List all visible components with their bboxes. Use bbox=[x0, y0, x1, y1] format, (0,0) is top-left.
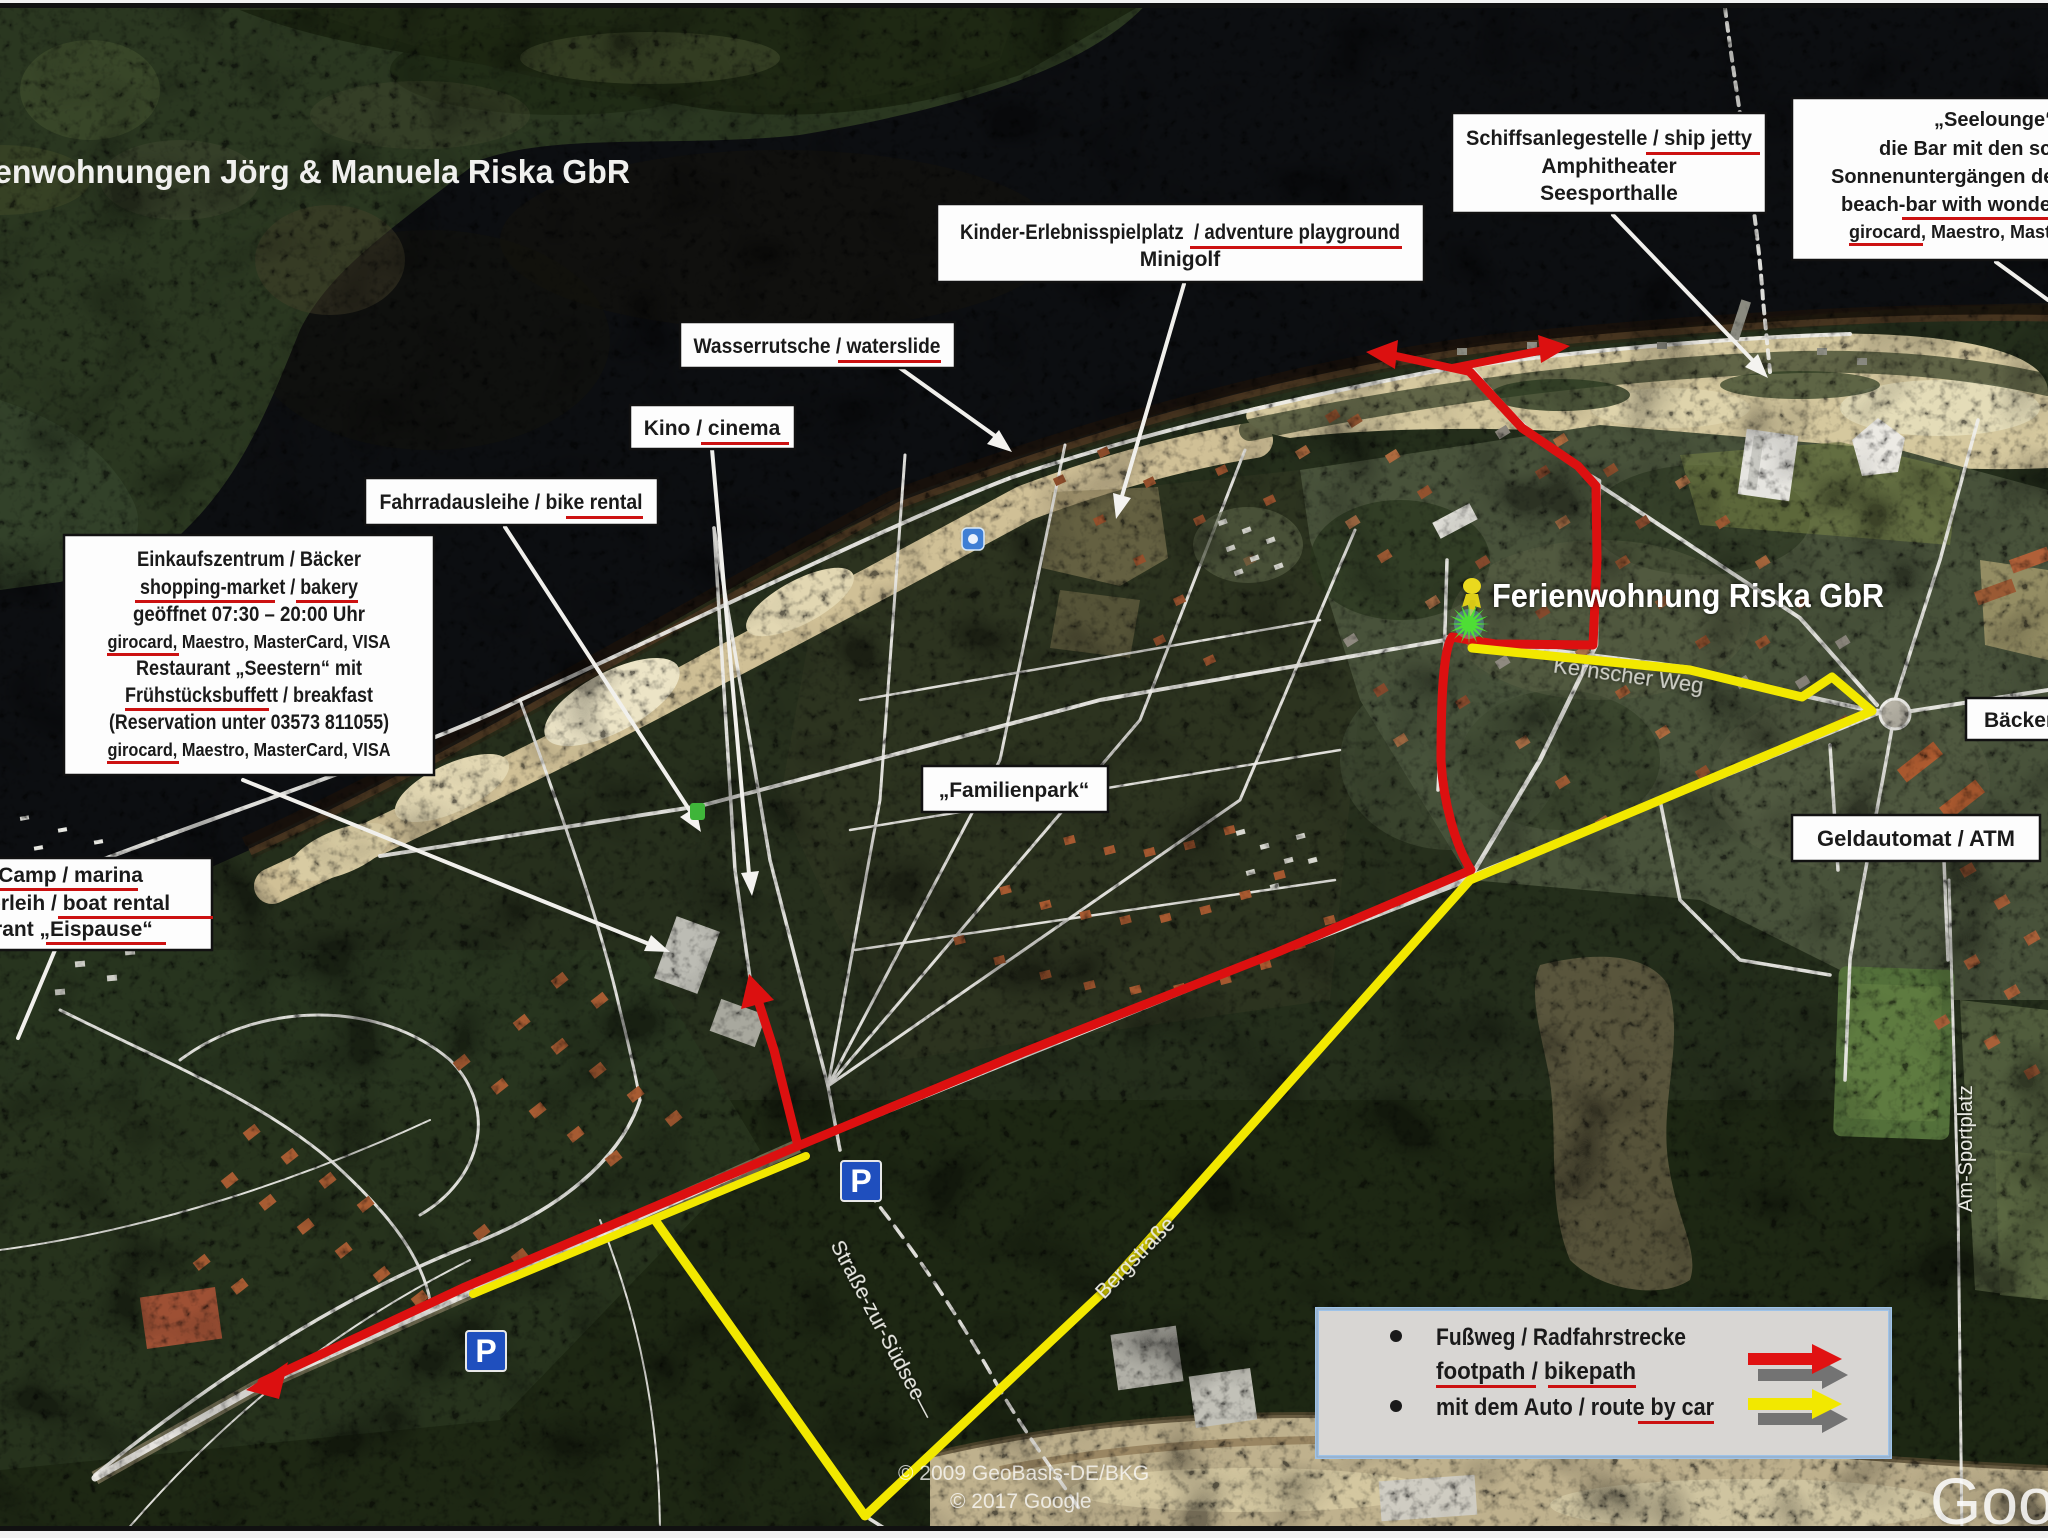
svg-text:Ferienwohnung Riska GbR: Ferienwohnung Riska GbR bbox=[1492, 577, 1884, 614]
svg-text:footpath / bikepath: footpath / bikepath bbox=[1436, 1358, 1636, 1385]
svg-text:Kinder-Erlebnisspielplatz / a: Kinder-Erlebnisspielplatz / adventure pl… bbox=[960, 221, 1400, 244]
svg-text:Schiffsanlegestelle / ship jet: Schiffsanlegestelle / ship jetty bbox=[1466, 127, 1752, 150]
svg-text:mit dem Auto / route by car: mit dem Auto / route by car bbox=[1436, 1394, 1714, 1421]
svg-text:„Familienpark“: „Familienpark“ bbox=[939, 779, 1090, 802]
svg-text:Minigolf: Minigolf bbox=[1140, 248, 1221, 271]
svg-text:Restaurant „Seestern“ mit: Restaurant „Seestern“ mit bbox=[136, 657, 362, 680]
svg-text:Wasserrutsche / waterslide: Wasserrutsche / waterslide bbox=[694, 335, 941, 358]
svg-text:P: P bbox=[475, 1333, 496, 1369]
svg-text:Fahrradausleihe / bike rental: Fahrradausleihe / bike rental bbox=[380, 491, 643, 514]
svg-text:Frühstücksbuffett / breakfast: Frühstücksbuffett / breakfast bbox=[125, 684, 373, 707]
svg-text:Sonnenuntergängen des S: Sonnenuntergängen des S bbox=[1831, 166, 2048, 188]
svg-text:Amphitheater: Amphitheater bbox=[1541, 155, 1676, 178]
svg-text:© 2009 GeoBasis-DE/BKG: © 2009 GeoBasis-DE/BKG bbox=[898, 1462, 1149, 1485]
svg-text:„Seelounge“ –: „Seelounge“ – bbox=[1934, 109, 2048, 131]
svg-text:die Bar mit den schön: die Bar mit den schön bbox=[1879, 138, 2048, 160]
svg-text:shopping-market / bakery: shopping-market / bakery bbox=[140, 576, 358, 599]
svg-text:© 2017 Google: © 2017 Google bbox=[950, 1490, 1092, 1513]
svg-text:Kino / cinema: Kino / cinema bbox=[644, 417, 781, 440]
svg-text:P: P bbox=[850, 1163, 871, 1199]
svg-text:Geldautomat / ATM: Geldautomat / ATM bbox=[1817, 826, 2015, 851]
svg-text:enwohnungen Jörg & Manuela Ris: enwohnungen Jörg & Manuela Riska GbR bbox=[0, 153, 630, 190]
svg-text:beach-bar with wonderfu: beach-bar with wonderfu bbox=[1841, 194, 2048, 216]
svg-text:SeenCamp / marina: SeenCamp / marina bbox=[0, 864, 143, 887]
svg-text:Am-Sportplatz: Am-Sportplatz bbox=[1955, 1085, 1977, 1212]
svg-text:Einkaufszentrum / Bäcker: Einkaufszentrum / Bäcker bbox=[137, 548, 361, 571]
svg-text:Restaurant „Eispause“: Restaurant „Eispause“ bbox=[0, 918, 153, 941]
svg-text:geöffnet 07:30 – 20:00 Uhr: geöffnet 07:30 – 20:00 Uhr bbox=[133, 603, 365, 626]
svg-text:Seesporthalle: Seesporthalle bbox=[1540, 182, 1678, 205]
svg-text:Fußweg / Radfahrstrecke: Fußweg / Radfahrstrecke bbox=[1436, 1324, 1686, 1351]
svg-text:Bäckerei: Bäckerei bbox=[1984, 709, 2048, 732]
svg-text:girocard, Maestro, MasterCard,: girocard, Maestro, MasterCard, VISA bbox=[108, 632, 391, 652]
svg-text:girocard, Maestro, Master: girocard, Maestro, Master bbox=[1849, 222, 2048, 242]
svg-text:girocard, Maestro, MasterCard,: girocard, Maestro, MasterCard, VISA bbox=[108, 740, 391, 760]
svg-text:(Reservation unter 03573 81105: (Reservation unter 03573 811055) bbox=[109, 711, 389, 734]
svg-text:Bootsverleih / boat rental: Bootsverleih / boat rental bbox=[0, 892, 170, 915]
